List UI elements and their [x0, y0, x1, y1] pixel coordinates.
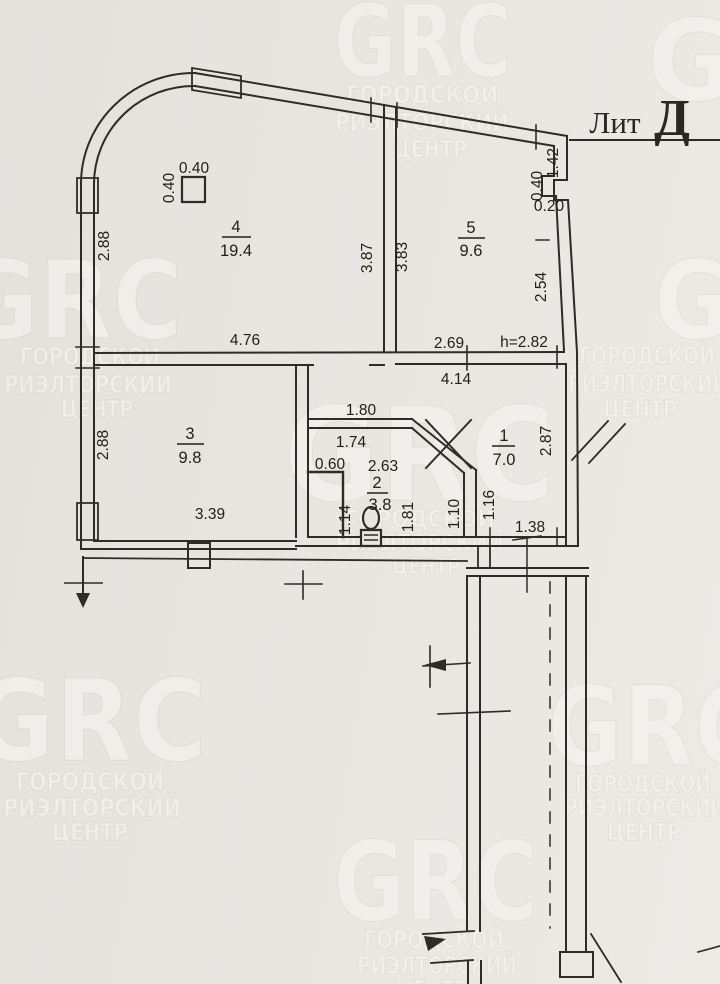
svg-text:РИЭЛТОРСКИЙ: РИЭЛТОРСКИЙ	[564, 793, 720, 822]
svg-text:ГОРОДСКОЙ: ГОРОДСКОЙ	[346, 80, 498, 109]
room-3-label: 3 9.8	[177, 425, 204, 467]
room-3-area: 9.8	[179, 449, 202, 467]
dim-column-top: 0.40	[179, 160, 210, 177]
room-5-number: 5	[466, 219, 475, 237]
dim-corridor-width: 1.16	[481, 490, 498, 520]
dim-niche-top: 1.42	[545, 148, 562, 178]
svg-text:ЦЕНТР: ЦЕНТР	[396, 977, 468, 984]
floorplan-scan: GRC ГОРОДСКОЙ РИЭЛТОРСКИЙ ЦЕНТР GRC GRC …	[0, 0, 720, 984]
svg-text:ГОРОДСКОЙ: ГОРОДСКОЙ	[579, 341, 715, 370]
svg-text:ЦЕНТР: ЦЕНТР	[392, 555, 460, 580]
room-1-number: 1	[499, 427, 508, 445]
building-label: Лит Д	[589, 90, 690, 147]
svg-text:РИЭЛТОРСКИЙ: РИЭЛТОРСКИЙ	[4, 370, 172, 399]
dim-room4-left: 2.88	[96, 231, 113, 261]
dim-partition45-left: 3.87	[359, 243, 376, 273]
dim-room5-bottom: 2.69	[434, 335, 464, 352]
dim-room3-bottom: 3.39	[195, 506, 225, 523]
dim-ceiling-height: h=2.82	[500, 334, 548, 351]
svg-text:ЦЕНТР: ЦЕНТР	[393, 137, 467, 163]
svg-text:РИЭЛТОРСКИЙ: РИЭЛТОРСКИЙ	[357, 951, 517, 980]
dim-bath-top: 1.74	[336, 434, 367, 451]
svg-text:РИЭЛТОРСКИЙ: РИЭЛТОРСКИЙ	[3, 793, 181, 822]
dim-hall-width: 1.80	[346, 402, 377, 419]
room-5-label: 5 9.6	[458, 219, 485, 260]
entrance-arrow-icon	[64, 556, 103, 608]
dim-closet-height: 1.14	[337, 505, 354, 536]
room-2-number: 2	[372, 474, 381, 492]
room-5-area: 9.6	[460, 242, 483, 260]
svg-text:ЦЕНТР: ЦЕНТР	[607, 820, 681, 846]
dim-corridor-right: 2.87	[538, 426, 555, 456]
dim-partition45-right: 3.83	[394, 242, 411, 272]
dim-bath-diag: 2.63	[368, 458, 398, 475]
room-4-area: 19.4	[220, 242, 252, 260]
dim-closet-width: 0.60	[315, 456, 346, 473]
watermark-stamp-lower-left: GRC ГОРОДСКОЙ РИЭЛТОРСКИЙ ЦЕНТР	[0, 657, 208, 846]
building-letter: Д	[654, 90, 690, 147]
svg-text:ЦЕНТР: ЦЕНТР	[52, 820, 128, 846]
room-2-area: 3.8	[369, 496, 392, 514]
room-3-number: 3	[185, 425, 194, 443]
room-4-number: 4	[231, 218, 240, 236]
floorplan-drawing: GRC ГОРОДСКОЙ РИЭЛТОРСКИЙ ЦЕНТР GRC GRC …	[0, 0, 720, 984]
svg-text:ГОРОДСКОЙ: ГОРОДСКОЙ	[16, 767, 164, 796]
dim-niche-low: 0.20	[534, 198, 565, 215]
dim-bath-wall: 1.10	[446, 499, 463, 530]
building-label-prefix: Лит	[589, 105, 641, 140]
watermark-stamp-lower-right: GRC ГОРОДСКОЙ РИЭЛТОРСКИЙ ЦЕНТР	[548, 663, 720, 846]
watermark-stamp-top-center: GRC ГОРОДСКОЙ РИЭЛТОРСКИЙ ЦЕНТР	[334, 0, 512, 163]
dim-corridor-top: 4.14	[441, 371, 472, 388]
watermark-stamp-left-middle: GRC ГОРОДСКОЙ РИЭЛТОРСКИЙ ЦЕНТР	[0, 239, 183, 423]
room-4-label: 4 19.4	[220, 218, 252, 260]
dim-room4-bottom: 4.76	[230, 332, 260, 349]
svg-text:ЦЕНТР: ЦЕНТР	[603, 397, 677, 423]
dim-exit-width: 1.38	[515, 519, 545, 536]
dim-niche-mid: 0.40	[529, 171, 546, 202]
watermark-stamp-right-middle: GRC ГОРОДСКОЙ РИЭЛТОРСКИЙ ЦЕНТР	[568, 239, 720, 423]
room-1-area: 7.0	[493, 451, 516, 469]
svg-text:ЦЕНТР: ЦЕНТР	[61, 397, 133, 423]
svg-text:РИЭЛТОРСКИЙ: РИЭЛТОРСКИЙ	[568, 369, 720, 398]
dim-room5-right: 2.54	[533, 272, 550, 303]
watermark-stamp-center: GRC ГОРОДСКОЙ РИЭЛТОРСКИЙ ЦЕНТР	[284, 379, 556, 580]
watermark-stamp-bottom-center: GRC ГОРОДСКОЙ РИЭЛТОРСКИЙ ЦЕНТР	[334, 818, 539, 984]
dim-column-side: 0.40	[161, 173, 178, 204]
dim-room3-left: 2.88	[95, 430, 112, 460]
dim-bath-right: 1.81	[400, 502, 417, 532]
